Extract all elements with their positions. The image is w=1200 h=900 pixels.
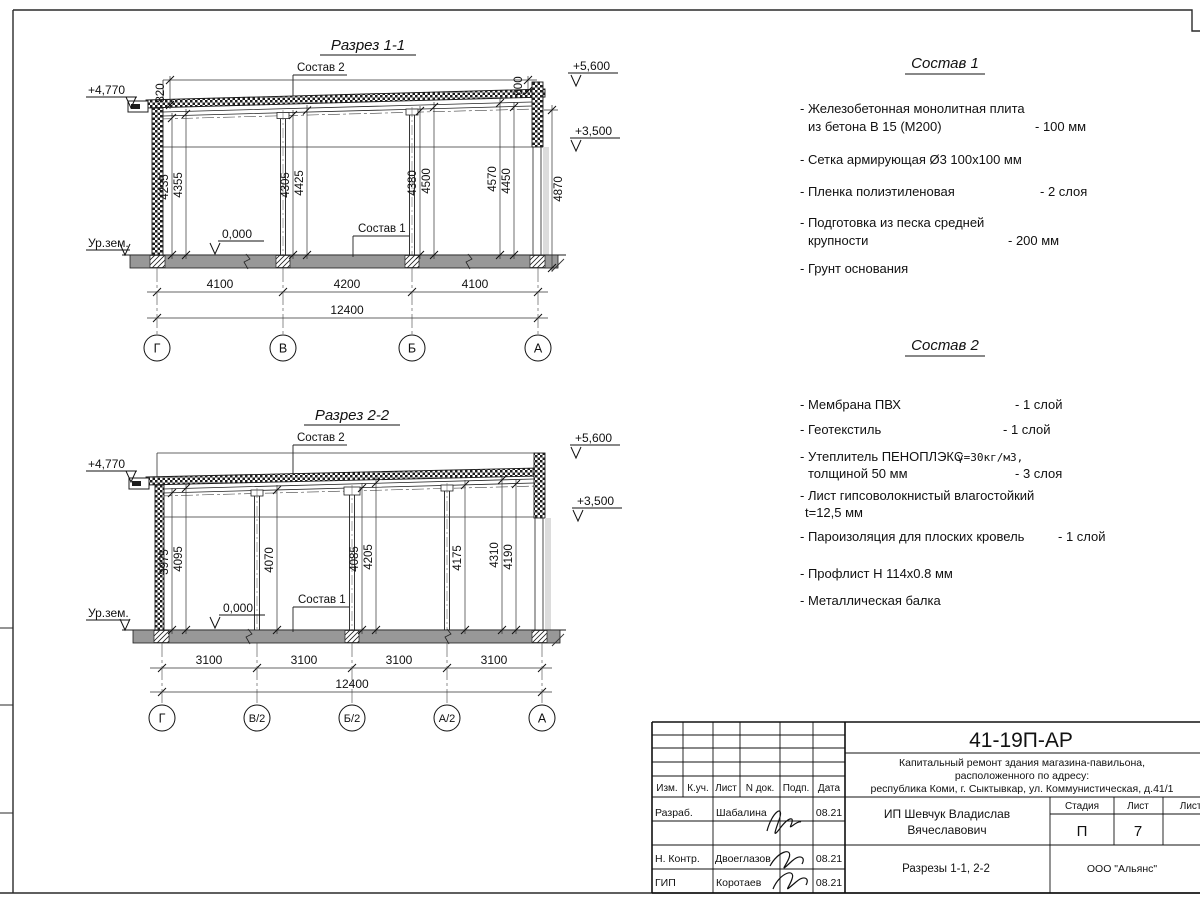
row-date: 08.21	[816, 807, 842, 819]
dim-total-label: 12400	[335, 677, 369, 691]
row-name: Двоеглазов	[715, 853, 771, 865]
wall-right-panel	[543, 147, 549, 255]
col-header-kuch: К.уч.	[687, 783, 709, 794]
col-header-data: Дата	[818, 783, 841, 794]
vdim-label: 4355	[173, 172, 185, 198]
dim-label: 4100	[207, 277, 234, 291]
elevation-label: +3,500	[577, 494, 614, 508]
client-name-line1: ИП Шевчук Владислав	[884, 807, 1010, 821]
vdim-label: 4870	[553, 176, 565, 202]
sheet-subtitle: Разрезы 1-1, 2-2	[902, 863, 990, 875]
list-item: из бетона В 15 (М200)	[808, 119, 942, 134]
axis-label: Б/2	[344, 713, 360, 725]
row-role: Разраб.	[655, 807, 693, 819]
section-2-drawing: Разрез 2-2 Состав 2	[86, 407, 622, 731]
sostav2-callout: Состав 2	[297, 432, 345, 444]
axis-bubbles	[144, 335, 551, 361]
vdim-label: 4425	[294, 170, 306, 196]
dim-label: 3100	[481, 653, 508, 667]
row-role: Н. Контр.	[655, 853, 700, 865]
title-block: 41-19П-АР Капитальный ремонт здания мага…	[652, 722, 1200, 893]
stage-value: П	[1077, 823, 1088, 840]
col-header-izm: Изм.	[656, 783, 677, 794]
elevation-label: 0,000	[223, 601, 253, 615]
axis-label: А	[534, 342, 543, 356]
list-item: - Грунт основания	[800, 261, 908, 276]
list-item: толщиной 50 мм	[808, 466, 908, 481]
sostav1-callout: Состав 1	[358, 223, 406, 235]
vdim-label: 4175	[452, 545, 464, 571]
vdim-label: 4085	[349, 546, 361, 572]
list-item: - Пароизоляция для плоских кровель	[800, 529, 1025, 544]
list-item: - Профлист Н 114х0.8 мм	[800, 566, 953, 581]
vdim-label: 3975	[159, 549, 171, 575]
axis-label: А	[538, 712, 547, 726]
vdim-label: 4310	[489, 542, 501, 568]
vdim-label: 4070	[264, 547, 276, 573]
wall-right-panel	[545, 518, 551, 630]
drawing-sheet: Разрез 1-1 Состав 2	[0, 0, 1200, 900]
list-item: - Железобетонная монолитная плита	[800, 101, 1025, 116]
stage-header: Стадия	[1065, 801, 1099, 812]
parapet-right	[534, 453, 545, 518]
sheets-header: Листов	[1180, 801, 1200, 812]
axis-label: В/2	[249, 713, 266, 725]
list-item: - Лист гипсоволокнистый влагостойкий	[800, 488, 1034, 503]
vdim-label: 600	[513, 76, 525, 95]
list-item-value: - 2 слоя	[1040, 184, 1087, 199]
dim-label: 3100	[291, 653, 318, 667]
project-desc-line3: республика Коми, г. Сыктывкар, ул. Комму…	[870, 783, 1173, 795]
dim-label: 4200	[334, 277, 361, 291]
list-item-value: - 1 слой	[1058, 529, 1106, 544]
dim-label: 3100	[386, 653, 413, 667]
section1-title: Разрез 1-1	[331, 37, 405, 54]
parapet-right	[532, 82, 543, 147]
col-header-ndok: N док.	[746, 783, 775, 794]
section-1-drawing: Разрез 1-1 Состав 2	[86, 37, 620, 361]
list-item: - Сетка армирующая Ø3 100x100 мм	[800, 152, 1022, 167]
sheet-value: 7	[1134, 823, 1142, 840]
row-date: 08.21	[816, 853, 842, 865]
sostav2-panel: Состав 2 - Мембрана ПВХ - 1 слой - Геоте…	[800, 337, 1106, 608]
axis-label: А/2	[439, 713, 456, 725]
list-item: - Подготовка из песка средней	[800, 215, 984, 230]
list-item-value: - 200 мм	[1008, 233, 1059, 248]
sostav1-title: Состав 1	[911, 55, 979, 72]
axis-label: В	[279, 342, 287, 356]
ground-level-label: Ур.зем.	[88, 236, 129, 250]
list-item-gamma: γ=30кг/м3,	[957, 451, 1023, 464]
vdim-label: 4450	[501, 168, 513, 194]
elevation-label: +5,600	[575, 431, 612, 445]
list-item: t=12,5 мм	[805, 505, 863, 520]
list-item: - Металлическая балка	[800, 593, 941, 608]
sostav2-title: Состав 2	[911, 337, 979, 354]
elevation-label: 0,000	[222, 227, 252, 241]
elevation-label: +3,500	[575, 124, 612, 138]
organization: ООО "Альянс"	[1087, 863, 1157, 875]
row-date: 08.21	[816, 877, 842, 889]
client-name-line2: Вячеславович	[907, 823, 986, 837]
list-item-value: - 100 мм	[1035, 119, 1086, 134]
dim-label: 3100	[196, 653, 223, 667]
sheet-svg: Разрез 1-1 Состав 2	[0, 0, 1200, 900]
vdim-label: 820	[155, 83, 167, 102]
vdim-label: 4190	[503, 544, 515, 570]
dim-label: 4100	[462, 277, 489, 291]
vdim-label: 4305	[280, 172, 292, 198]
signatures	[767, 811, 807, 889]
row-name: Шабалина	[716, 807, 767, 819]
vdim-label: 4570	[487, 166, 499, 192]
floor-slab	[130, 255, 558, 268]
vdim-label: 4095	[173, 546, 185, 572]
list-item: - Мембрана ПВХ	[800, 397, 901, 412]
vdim-label: 4500	[421, 168, 433, 194]
sostav2-callout: Состав 2	[297, 62, 345, 74]
vdim-label: 4205	[363, 544, 375, 570]
project-desc-line1: Капитальный ремонт здания магазина-павил…	[899, 757, 1145, 769]
list-item-value: - 1 слой	[1003, 422, 1051, 437]
roof-slab	[146, 89, 545, 108]
axis-label: Г	[154, 342, 161, 356]
col-header-podp: Подп.	[783, 783, 810, 794]
roof-slab	[146, 468, 540, 485]
sostav1-panel: Состав 1 - Железобетонная монолитная пли…	[800, 55, 1087, 276]
list-item: - Геотекстиль	[800, 422, 881, 437]
vdim-label: 4380	[407, 170, 419, 196]
elevation-label: +4,770	[88, 83, 125, 97]
ground-level-label: Ур.зем.	[88, 606, 129, 620]
row-role: ГИП	[655, 877, 676, 889]
vdim-label: 4235	[159, 174, 171, 200]
dim-total-label: 12400	[330, 303, 364, 317]
elevation-label: +5,600	[573, 59, 610, 73]
list-item-value: - 3 слоя	[1015, 466, 1062, 481]
elevation-label: +4,770	[88, 457, 125, 471]
col-header-list: Лист	[715, 783, 737, 794]
list-item-value: - 1 слой	[1015, 397, 1063, 412]
row-name: Коротаев	[716, 877, 762, 889]
list-item: - Утеплитель ПЕНОПЛЭКС	[800, 449, 963, 464]
axis-label: Г	[159, 712, 166, 726]
section2-title: Разрез 2-2	[315, 407, 390, 424]
project-desc-line2: расположенного по адресу:	[955, 770, 1089, 782]
list-item: - Пленка полиэтиленовая	[800, 184, 955, 199]
sostav1-callout: Состав 1	[298, 594, 346, 606]
doc-number: 41-19П-АР	[969, 729, 1073, 752]
axis-label: Б	[408, 342, 416, 356]
sheet-header: Лист	[1127, 801, 1149, 812]
list-item: крупности	[808, 233, 868, 248]
